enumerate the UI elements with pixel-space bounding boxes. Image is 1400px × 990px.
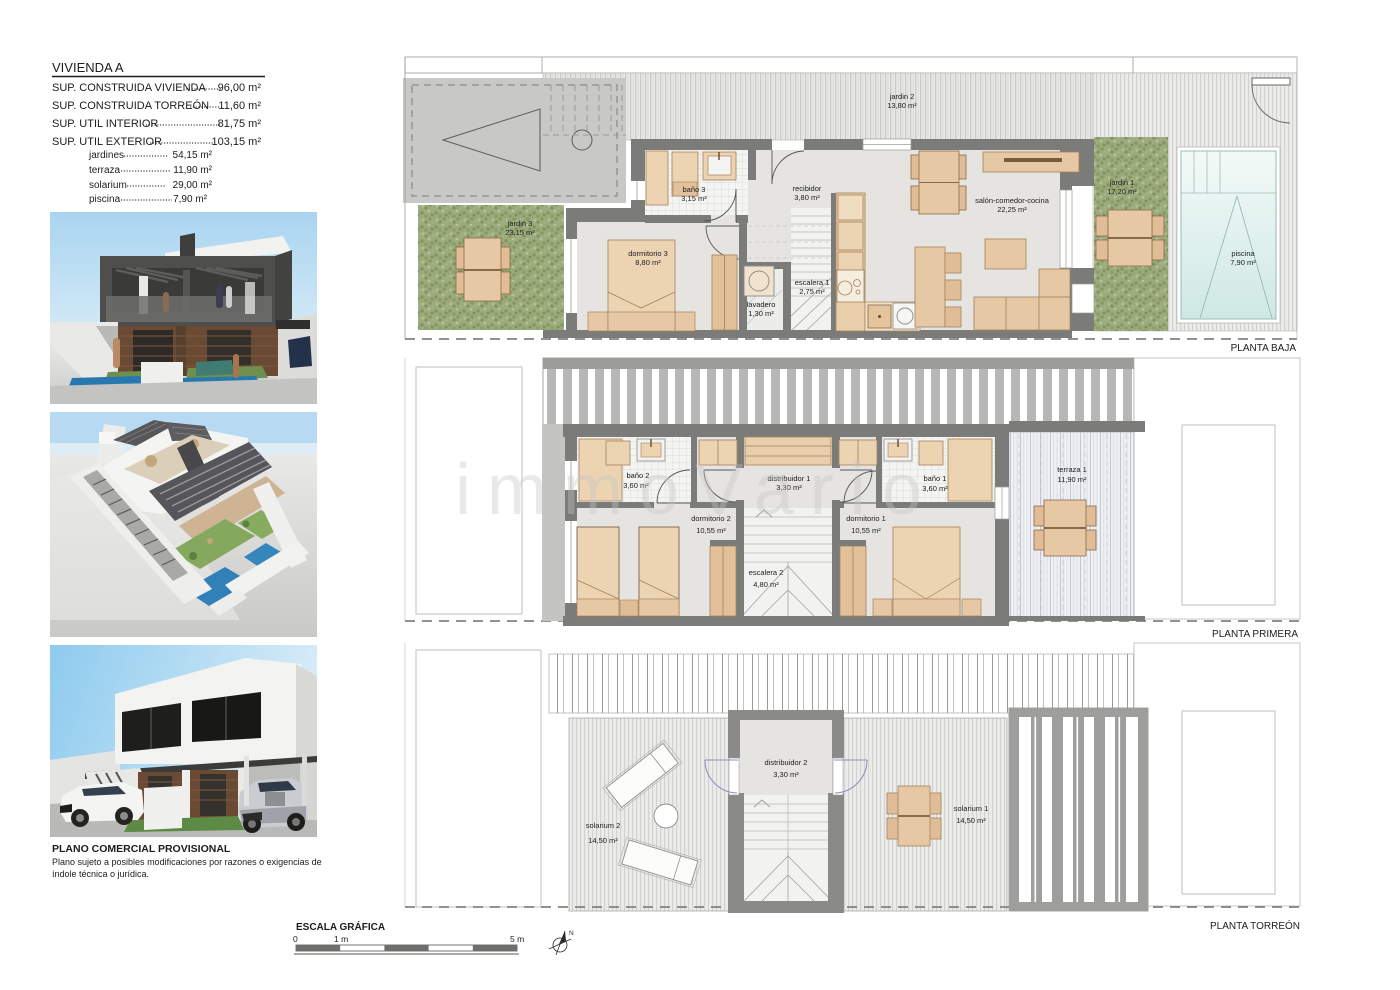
svg-text:PLANTA BAJA: PLANTA BAJA: [1231, 343, 1297, 354]
svg-text:SUP. CONSTRUIDA VIVIENDA: SUP. CONSTRUIDA VIVIENDA: [52, 82, 206, 94]
svg-text:PLANTA TORREÓN: PLANTA TORREÓN: [1210, 919, 1300, 932]
svg-text:jardin 2: jardin 2: [889, 92, 915, 101]
svg-text:solarium 2: solarium 2: [586, 821, 621, 830]
svg-text:piscina: piscina: [89, 194, 121, 205]
svg-text:lavadero: lavadero: [747, 300, 776, 309]
svg-text:1,30 m²: 1,30 m²: [748, 309, 774, 318]
svg-text:SUP. UTIL EXTERIOR: SUP. UTIL EXTERIOR: [52, 136, 162, 148]
svg-text:103,15 m²: 103,15 m²: [211, 136, 261, 148]
svg-text:N: N: [569, 930, 574, 937]
svg-text:jardin 1: jardin 1: [1109, 178, 1135, 187]
svg-text:jardines: jardines: [88, 150, 124, 161]
svg-text:14,50 m²: 14,50 m²: [956, 816, 986, 825]
svg-text:solarium 1: solarium 1: [954, 804, 989, 813]
svg-text:PLANO COMERCIAL PROVISIONAL: PLANO COMERCIAL PROVISIONAL: [52, 843, 231, 855]
svg-text:salón-comedor-cocina: salón-comedor-cocina: [975, 196, 1050, 205]
svg-text:índole técnica o jurídica.: índole técnica o jurídica.: [52, 869, 149, 879]
svg-text:Plano sujeto a posibles modifi: Plano sujeto a posibles modificaciones p…: [52, 857, 322, 867]
svg-text:baño 3: baño 3: [683, 185, 706, 194]
svg-text:2,75 m²: 2,75 m²: [799, 287, 825, 296]
svg-text:3,30 m²: 3,30 m²: [773, 770, 799, 779]
svg-text:3,15 m²: 3,15 m²: [681, 194, 707, 203]
svg-text:jardin 3: jardin 3: [507, 219, 533, 228]
svg-text:11,90 m²: 11,90 m²: [1057, 475, 1087, 484]
svg-text:dormitorio 3: dormitorio 3: [628, 249, 668, 258]
svg-text:0: 0: [293, 934, 298, 944]
svg-text:escalera 2: escalera 2: [749, 568, 784, 577]
svg-text:recibidor: recibidor: [793, 184, 822, 193]
svg-text:5 m: 5 m: [510, 934, 524, 944]
svg-text:17,20 m²: 17,20 m²: [1107, 187, 1137, 196]
svg-text:SUP. UTIL INTERIOR: SUP. UTIL INTERIOR: [52, 118, 158, 130]
svg-text:11,60 m²: 11,60 m²: [218, 100, 261, 112]
svg-text:solarium: solarium: [89, 180, 127, 191]
svg-text:VIVIENDA A: VIVIENDA A: [52, 60, 124, 75]
svg-text:14,50 m²: 14,50 m²: [588, 836, 618, 845]
svg-text:1 m: 1 m: [334, 934, 348, 944]
svg-text:81,75 m²: 81,75 m²: [218, 118, 262, 130]
svg-text:96,00 m²: 96,00 m²: [218, 82, 262, 94]
svg-text:7,90 m²: 7,90 m²: [173, 194, 208, 205]
svg-text:SUP. CONSTRUIDA TORREÓN: SUP. CONSTRUIDA TORREÓN: [52, 99, 209, 112]
svg-text:4,80 m²: 4,80 m²: [753, 580, 779, 589]
svg-text:23,15 m²: 23,15 m²: [505, 228, 535, 237]
svg-text:PLANTA PRIMERA: PLANTA PRIMERA: [1212, 629, 1298, 640]
svg-text:ESCALA GRÁFICA: ESCALA GRÁFICA: [296, 920, 385, 933]
svg-text:22,25 m²: 22,25 m²: [997, 205, 1027, 214]
svg-text:terraza: terraza: [89, 165, 121, 176]
svg-text:immoVario: immoVario: [455, 450, 938, 530]
svg-text:29,00 m²: 29,00 m²: [173, 180, 213, 191]
svg-text:escalera 1: escalera 1: [795, 278, 830, 287]
svg-text:13,80 m²: 13,80 m²: [887, 101, 917, 110]
svg-text:54,15 m²: 54,15 m²: [173, 150, 213, 161]
svg-text:distribuidor 2: distribuidor 2: [765, 758, 808, 767]
svg-text:3,80 m²: 3,80 m²: [794, 193, 820, 202]
svg-text:8,80 m²: 8,80 m²: [635, 258, 661, 267]
svg-text:11,90 m²: 11,90 m²: [173, 165, 212, 176]
svg-text:7,90 m²: 7,90 m²: [1230, 258, 1256, 267]
svg-text:terraza 1: terraza 1: [1057, 465, 1087, 474]
svg-text:piscina: piscina: [1231, 249, 1255, 258]
